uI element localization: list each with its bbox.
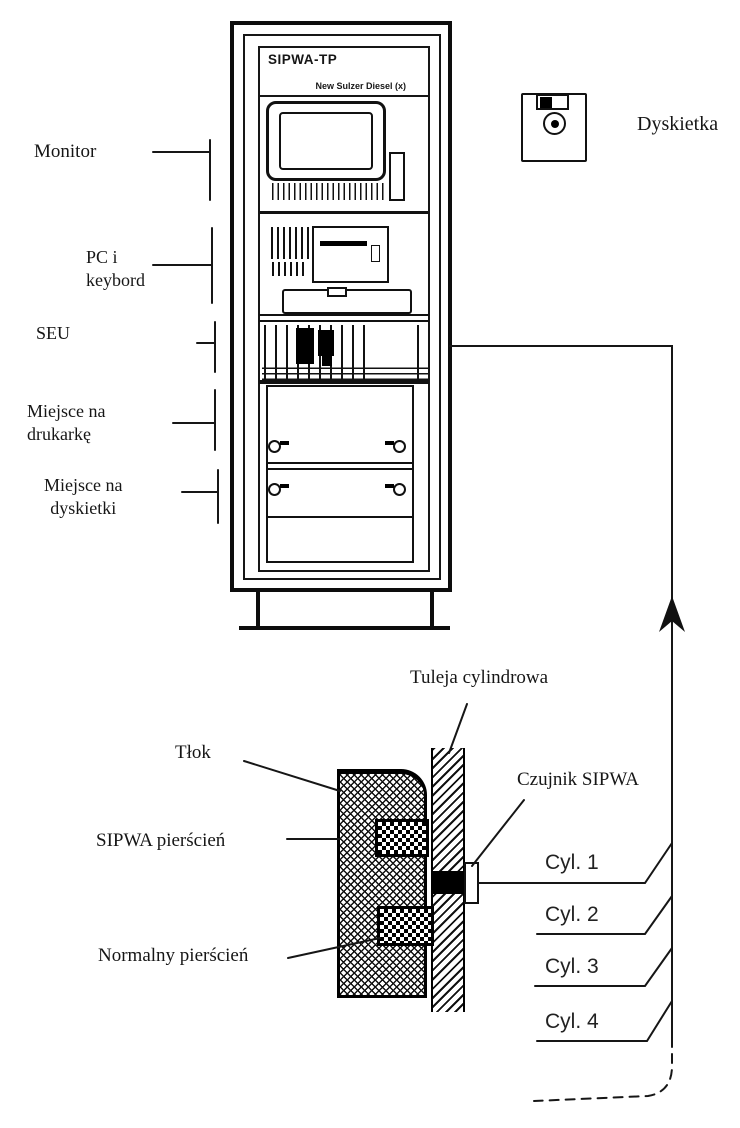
keyboard-shelf xyxy=(282,289,412,314)
panel-divider-line xyxy=(260,211,428,214)
printer-space-label: Miejsce na drukarkę xyxy=(27,400,105,445)
seu-bottom-rails xyxy=(262,366,428,380)
sipwa-tp-diagram: SIPWA-TP New Sulzer Diesel (x) xyxy=(0,0,740,1128)
monitor-side-slot xyxy=(389,152,405,201)
arrow-up-icon xyxy=(659,596,685,632)
drawer-divider-line xyxy=(267,468,413,470)
seu-module xyxy=(322,352,332,366)
piston-shape xyxy=(337,769,427,998)
pc-unit xyxy=(312,226,389,283)
seu-label: SEU xyxy=(36,322,70,345)
cyl-4-label: Cyl. 4 xyxy=(545,1010,599,1034)
signal-cable-dashed-tail xyxy=(534,1038,672,1101)
drawer-latch-icon xyxy=(268,483,281,496)
diskette-label: Dyskietka xyxy=(637,112,718,137)
sipwa-ring-shape xyxy=(375,819,429,857)
pc-vents-icon xyxy=(271,227,310,259)
keyboard-shelf-handle xyxy=(327,287,347,297)
piston-label: Tłok xyxy=(175,741,211,765)
sipwa-ring-label: SIPWA pierścień xyxy=(96,829,225,853)
drawer-divider-line xyxy=(267,516,413,518)
printer-space-label-line2: drukarkę xyxy=(27,424,91,444)
cylinder-liner-pointer-line xyxy=(449,704,467,753)
vent-strip-icon xyxy=(272,183,385,200)
seu-pointer-line xyxy=(197,322,215,372)
cabinet-leg xyxy=(256,592,260,627)
diskette-space-pointer-line xyxy=(182,470,218,523)
signal-cable-line xyxy=(450,346,672,1038)
pc-keyboard-label-line2: keybord xyxy=(86,270,145,290)
pc-label-bar xyxy=(320,241,367,246)
printer-space-pointer-line xyxy=(173,390,215,450)
monitor-label: Monitor xyxy=(34,140,96,164)
normal-ring-shape xyxy=(377,906,434,946)
cyl-3-label: Cyl. 3 xyxy=(545,955,599,979)
panel-header-line xyxy=(259,95,429,97)
sipwa-sensor-housing xyxy=(464,862,479,904)
drawer-latch-icon xyxy=(393,440,406,453)
pc-keyboard-label-line1: PC i xyxy=(86,247,118,267)
printer-space-label-line1: Miejsce na xyxy=(27,401,105,421)
floor-line xyxy=(239,626,450,630)
monitor-pointer-line xyxy=(153,140,210,200)
normal-ring-label: Normalny pierścień xyxy=(98,944,248,968)
monitor-screen xyxy=(279,112,373,170)
sipwa-sensor-shape xyxy=(431,871,465,894)
floppy-hub-dot-icon xyxy=(551,120,559,128)
shelf-edge-band xyxy=(259,314,429,322)
drawer-latch-icon xyxy=(268,440,281,453)
cabinet-subtitle: New Sulzer Diesel (x) xyxy=(288,81,406,91)
sipwa-sensor-label: Czujnik SIPWA xyxy=(517,768,639,792)
pc-vents-icon xyxy=(272,262,306,276)
diskette-space-label-line1: Miejsce na xyxy=(44,475,122,495)
diskette-space-label: Miejsce na dyskietki xyxy=(44,474,122,519)
cylinder-liner-label: Tuleja cylindrowa xyxy=(410,666,548,690)
piston-pointer-line xyxy=(244,761,340,791)
cyl-2-label: Cyl. 2 xyxy=(545,903,599,927)
cyl-1-label: Cyl. 1 xyxy=(545,851,599,875)
seu-bottom-band xyxy=(259,380,429,384)
seu-module xyxy=(296,328,314,364)
sipwa-sensor-pointer-line xyxy=(472,800,524,866)
floppy-shutter-slot-icon xyxy=(540,97,552,108)
pc-keyboard-pointer-line xyxy=(153,228,212,303)
drawer-divider-line xyxy=(267,462,413,464)
drawer-area xyxy=(266,385,414,563)
cabinet-leg xyxy=(430,592,434,627)
cabinet-title: SIPWA-TP xyxy=(268,52,337,67)
pc-keyboard-label: PC i keybord xyxy=(86,246,145,291)
pc-drive-slot xyxy=(371,245,380,262)
drawer-latch-icon xyxy=(393,483,406,496)
diskette-space-label-line2: dyskietki xyxy=(50,498,116,518)
